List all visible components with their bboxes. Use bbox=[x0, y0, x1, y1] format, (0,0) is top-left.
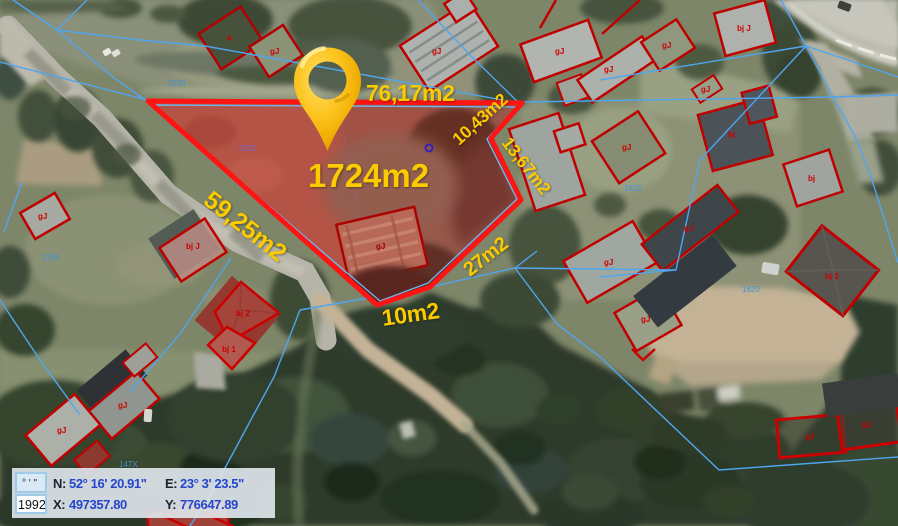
svg-text:bj: bj bbox=[808, 174, 815, 183]
svg-text:gJ: gJ bbox=[57, 426, 66, 435]
svg-text:gJ: gJ bbox=[805, 432, 814, 441]
svg-text:bj J: bj J bbox=[186, 242, 200, 251]
svg-text:776647.89: 776647.89 bbox=[180, 497, 238, 512]
svg-text:gJ: gJ bbox=[684, 224, 693, 233]
svg-text:bj 1: bj 1 bbox=[222, 345, 236, 354]
svg-text:gJ: gJ bbox=[641, 315, 650, 324]
svg-text:1992: 1992 bbox=[18, 498, 46, 512]
svg-text:gJ: gJ bbox=[662, 41, 671, 50]
svg-text:bj 2: bj 2 bbox=[236, 309, 250, 318]
svg-text:gJ: gJ bbox=[604, 65, 613, 74]
svg-text:gJ: gJ bbox=[862, 420, 871, 429]
svg-text:gJ: gJ bbox=[376, 242, 385, 251]
svg-text:bj: bj bbox=[728, 130, 735, 139]
svg-text:23° 3' 23.5": 23° 3' 23.5" bbox=[180, 476, 244, 491]
svg-text:gJ: gJ bbox=[270, 47, 279, 56]
svg-text:Y:: Y: bbox=[165, 497, 176, 512]
svg-text:52° 16' 20.91": 52° 16' 20.91" bbox=[69, 476, 147, 491]
svg-text:1335: 1335 bbox=[42, 253, 60, 262]
svg-text:gJ: gJ bbox=[555, 47, 564, 56]
svg-text:1820: 1820 bbox=[742, 285, 760, 294]
svg-text:147X: 147X bbox=[119, 460, 138, 469]
svg-text:gJ: gJ bbox=[118, 401, 127, 410]
svg-text:1022: 1022 bbox=[238, 144, 256, 153]
svg-text:gJ: gJ bbox=[432, 47, 441, 56]
svg-text:E:: E: bbox=[165, 476, 177, 491]
svg-text:76,17m2: 76,17m2 bbox=[366, 80, 455, 106]
svg-text:bj 2: bj 2 bbox=[825, 272, 839, 281]
svg-text:N:: N: bbox=[53, 476, 66, 491]
svg-text:gJ: gJ bbox=[701, 85, 710, 94]
svg-text:bj J: bj J bbox=[737, 24, 751, 33]
svg-text:22J0: 22J0 bbox=[168, 79, 186, 88]
svg-text:1724m2: 1724m2 bbox=[308, 157, 429, 194]
svg-text:gJ: gJ bbox=[604, 258, 613, 267]
svg-text:° ' ": ° ' " bbox=[22, 478, 37, 489]
svg-text:gJ: gJ bbox=[38, 212, 47, 221]
svg-text:1820: 1820 bbox=[624, 184, 642, 193]
svg-text:gJ: gJ bbox=[622, 143, 631, 152]
svg-text:4: 4 bbox=[227, 34, 232, 43]
svg-text:497357.80: 497357.80 bbox=[69, 497, 127, 512]
svg-text:X:: X: bbox=[53, 497, 65, 512]
